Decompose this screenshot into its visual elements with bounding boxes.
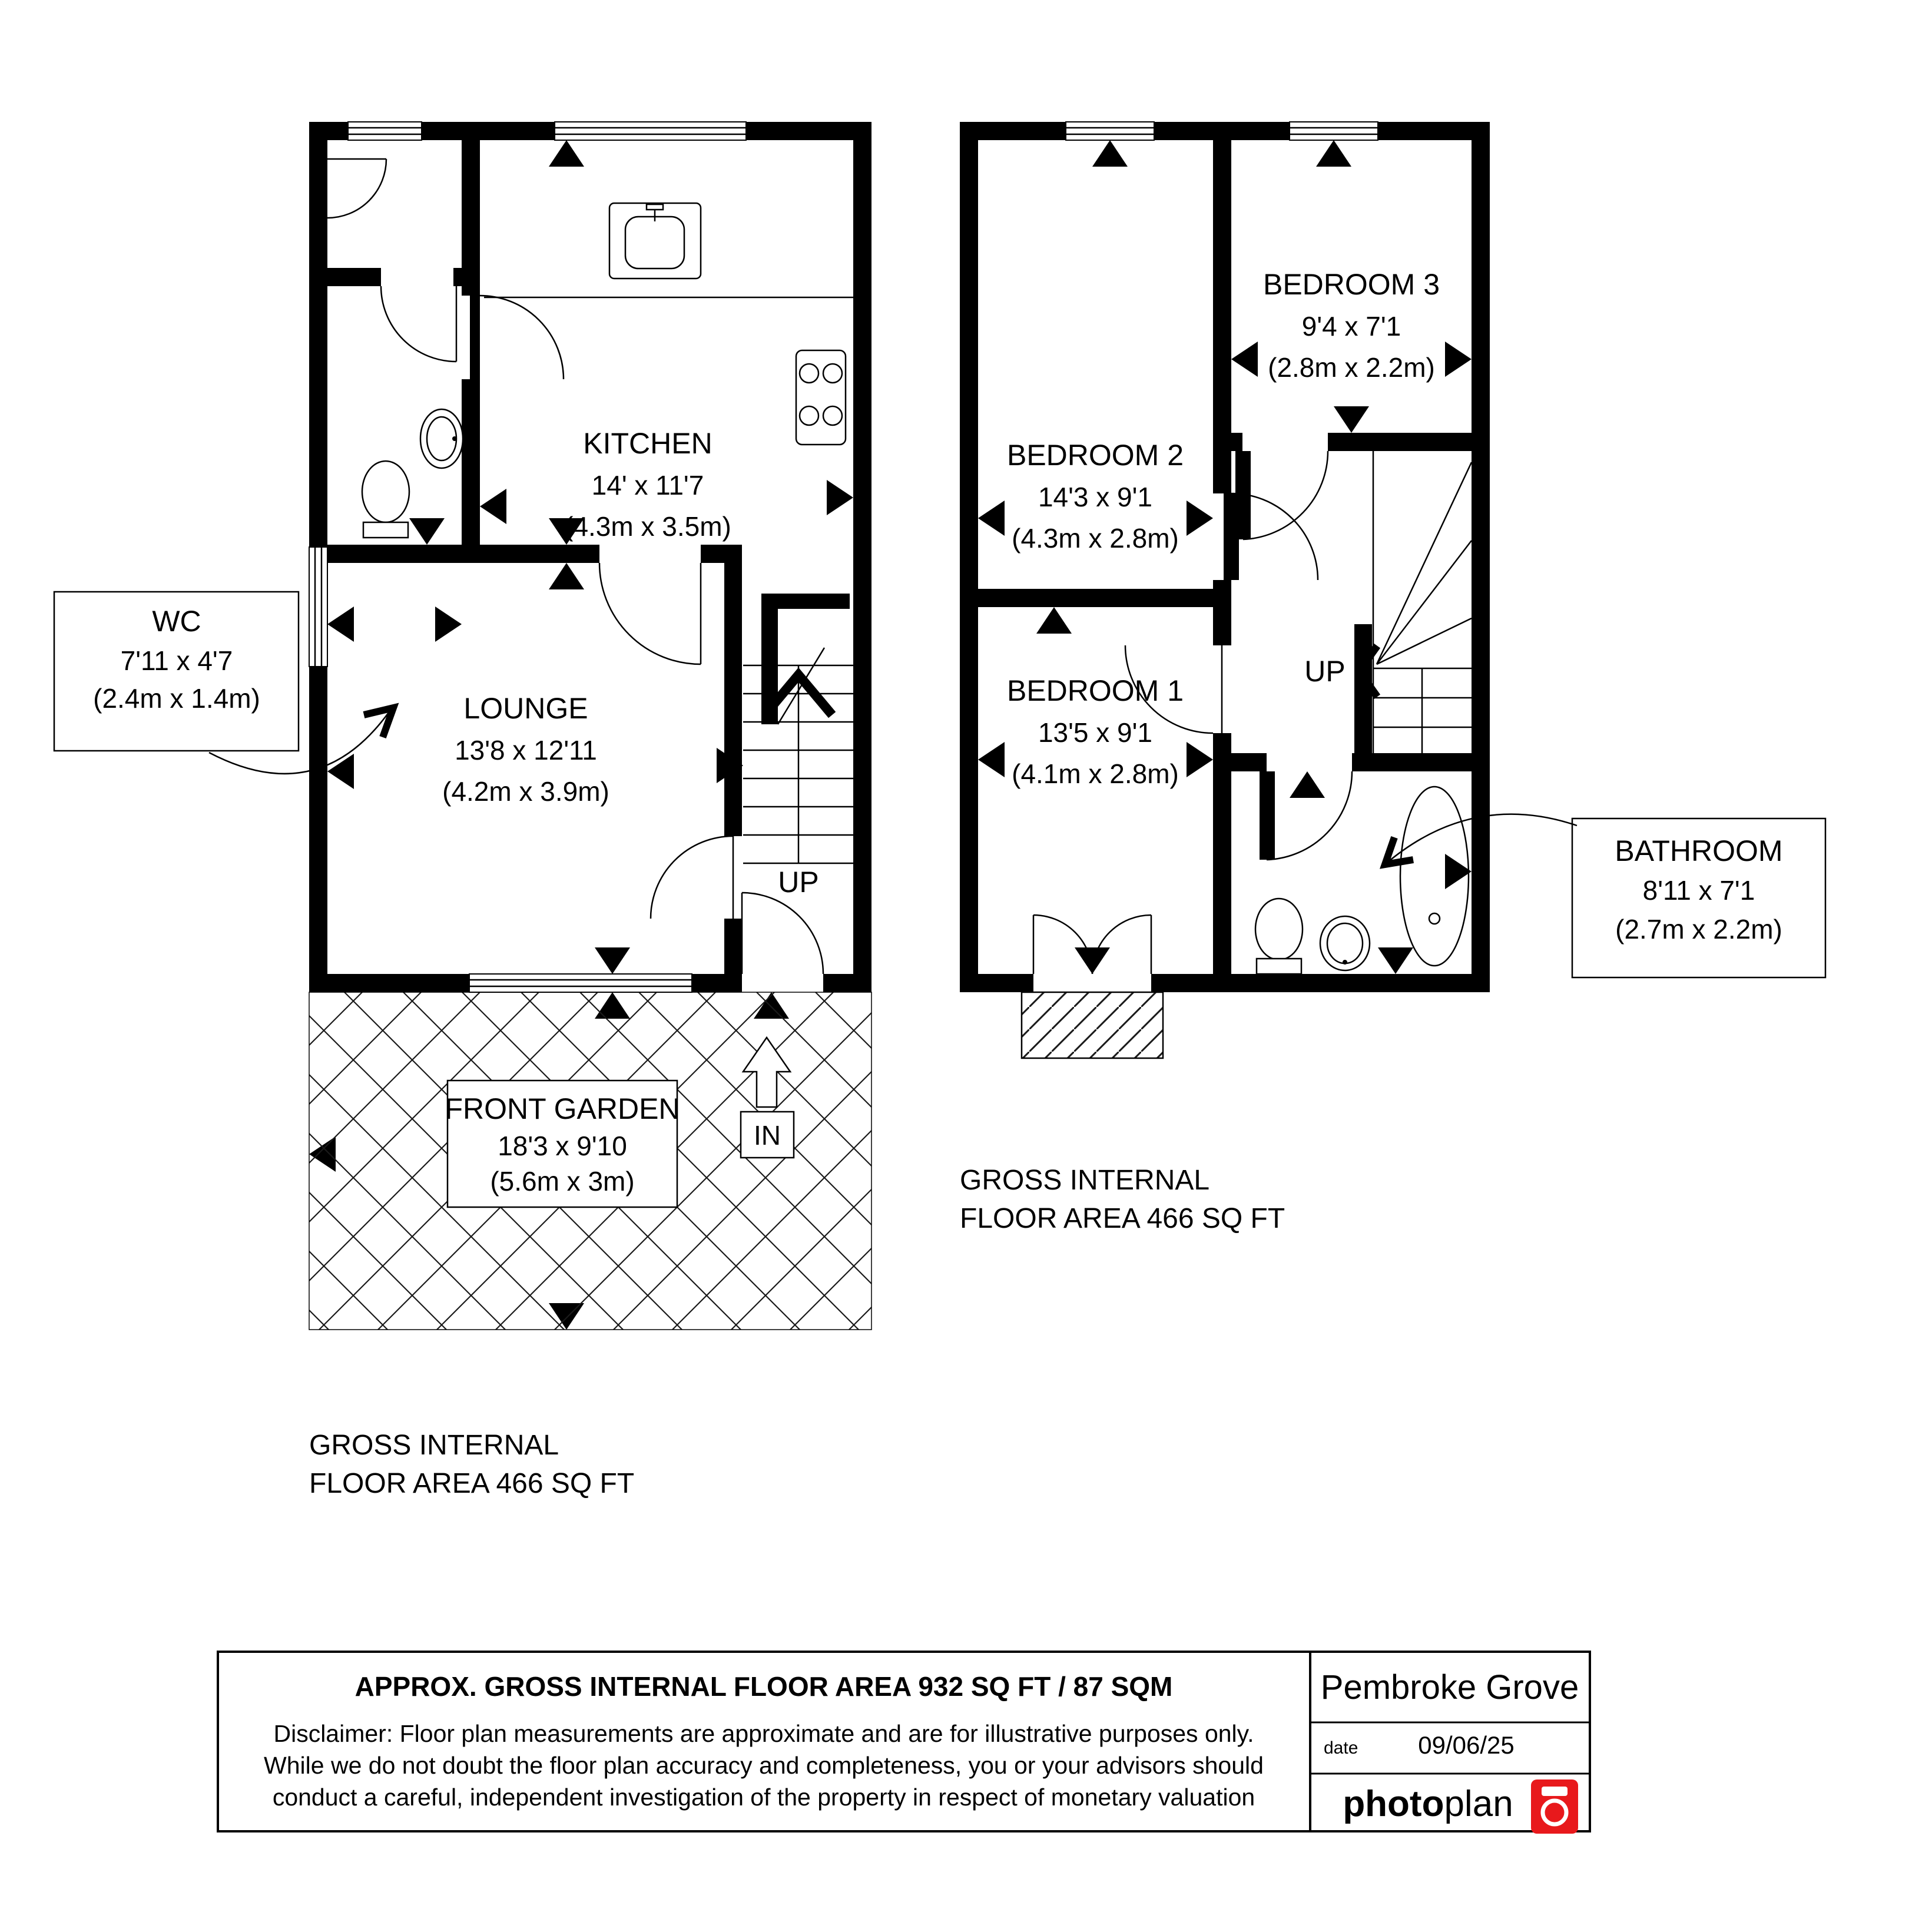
footer-area-title: APPROX. GROSS INTERNAL FLOOR AREA 932 SQ… (355, 1671, 1173, 1702)
dimension-arrow (549, 563, 584, 589)
front-garden-name-label: FRONT GARDEN (445, 1092, 680, 1125)
bedroom2-imperial-label: 14'3 x 9'1 (1038, 482, 1152, 512)
footer-disclaimer-line1: Disclaimer: Floor plan measurements are … (273, 1720, 1254, 1747)
footer-disclaimer-line3: conduct a careful, independent investiga… (273, 1784, 1255, 1811)
stairs-up-label-first: UP (1304, 655, 1345, 688)
front-garden-metric-label: (5.6m x 3m) (490, 1166, 634, 1197)
bedroom1-imperial-label: 13'5 x 9'1 (1038, 717, 1152, 748)
door-swing (651, 836, 733, 919)
bedroom3-metric-label: (2.8m x 2.2m) (1268, 352, 1435, 383)
bedroom1-name-label: BEDROOM 1 (1007, 674, 1184, 707)
bathroom-imperial-label: 8'11 x 7'1 (1643, 875, 1755, 906)
bedroom1-metric-label: (4.1m x 2.8m) (1012, 758, 1179, 789)
bedroom2-name-label: BEDROOM 2 (1007, 439, 1184, 472)
dimension-arrow (1036, 607, 1072, 634)
bedroom3-imperial-label: 9'4 x 7'1 (1302, 311, 1401, 342)
stove-icon (796, 350, 846, 445)
dimension-arrow (1187, 742, 1213, 777)
dimension-arrow (1445, 342, 1472, 377)
window (555, 122, 746, 140)
footer-disclaimer-line2: While we do not doubt the floor plan acc… (264, 1752, 1264, 1779)
camera-icon (1531, 1779, 1578, 1834)
dimension-arrow (1378, 947, 1413, 974)
logo-text-light: plan (1444, 1784, 1513, 1824)
kitchen-imperial-label: 14' x 11'7 (592, 470, 704, 501)
ground-floor-plan: FRONT GARDEN 18'3 x 9'10 (5.6m x 3m) IN … (54, 122, 871, 1499)
wc-name-label: WC (152, 605, 201, 638)
ground-area-note-line1: GROSS INTERNAL (309, 1430, 559, 1461)
front-garden-imperial-label: 18'3 x 9'10 (498, 1131, 627, 1161)
window (469, 974, 692, 992)
door-swing (1235, 451, 1328, 539)
dimension-arrow (327, 607, 354, 642)
ground-area-note-line2: FLOOR AREA 466 SQ FT (309, 1468, 634, 1499)
bathroom-fixtures (1255, 787, 1469, 974)
dimension-arrow (1187, 501, 1213, 536)
window (1290, 122, 1378, 140)
window (348, 122, 422, 140)
property-name: Pembroke Grove (1321, 1668, 1579, 1706)
lounge-metric-label: (4.2m x 3.9m) (442, 776, 609, 807)
door-swing (327, 159, 386, 218)
bedroom3-name-label: BEDROOM 3 (1263, 268, 1440, 301)
date-label: date (1324, 1738, 1358, 1758)
wc-metric-label: (2.4m x 1.4m) (93, 683, 260, 714)
ground-interior-walls (327, 140, 850, 974)
door-swing (381, 286, 456, 362)
toilet-icon (1255, 899, 1303, 974)
front-door-opening (742, 974, 823, 992)
dimension-arrow (595, 947, 630, 974)
logo-text-bold: photo (1343, 1784, 1444, 1824)
toilet-icon (362, 461, 409, 538)
door-swing (470, 296, 564, 379)
first-area-note-line2: FLOOR AREA 466 SQ FT (960, 1203, 1285, 1234)
dimension-arrow (978, 501, 1005, 536)
dimension-arrow (1075, 947, 1110, 974)
dimension-arrow (549, 140, 584, 167)
first-floor-plan: UP (960, 122, 1825, 1234)
footer: APPROX. GROSS INTERNAL FLOOR AREA 932 SQ… (218, 1652, 1590, 1834)
dimension-arrow (1092, 140, 1128, 167)
kitchen-fixtures (484, 203, 853, 445)
door-swing (599, 563, 701, 664)
date-value: 09/06/25 (1418, 1731, 1515, 1759)
sink-icon (1320, 916, 1370, 970)
wc-leader-arrowhead (364, 708, 393, 737)
staircase-first (1359, 451, 1472, 753)
dimension-arrow (827, 480, 853, 515)
dimension-arrow (435, 607, 462, 642)
sink-icon (420, 409, 463, 468)
dimension-arrow (1334, 406, 1369, 433)
bathroom-name-label: BATHROOM (1615, 834, 1782, 867)
kitchen-name-label: KITCHEN (583, 427, 712, 460)
dimension-arrow (409, 518, 445, 545)
kitchen-metric-label: (4.3m x 3.5m) (564, 511, 731, 542)
front-door-swing (742, 893, 823, 974)
wc-imperial-label: 7'11 x 4'7 (121, 645, 233, 676)
bedroom2-metric-label: (4.3m x 2.8m) (1012, 523, 1179, 554)
lounge-name-label: LOUNGE (463, 692, 588, 725)
bathroom-metric-label: (2.7m x 2.2m) (1615, 914, 1782, 945)
floor-plan-drawing: FRONT GARDEN 18'3 x 9'10 (5.6m x 3m) IN … (0, 0, 1932, 1932)
window (1066, 122, 1154, 140)
ground-doors (327, 159, 823, 974)
entrance-in-label: IN (754, 1120, 781, 1151)
first-windows (1033, 122, 1378, 992)
window (309, 547, 327, 667)
dimension-arrow (1290, 771, 1325, 798)
kitchen-sink-icon (609, 203, 701, 279)
dimension-arrow (1231, 342, 1258, 377)
stairs-up-label-ground: UP (778, 866, 818, 899)
dimension-arrow (978, 742, 1005, 777)
front-garden: FRONT GARDEN 18'3 x 9'10 (5.6m x 3m) IN (309, 992, 871, 1330)
dimension-arrow (480, 489, 506, 524)
french-door-opening (1033, 974, 1151, 992)
dimension-arrow (1316, 140, 1351, 167)
first-area-note-line1: GROSS INTERNAL (960, 1165, 1209, 1196)
floorplan-page: FRONT GARDEN 18'3 x 9'10 (5.6m x 3m) IN … (0, 0, 1932, 1932)
entrance-step-hatch (1022, 992, 1163, 1058)
staircase-ground (743, 665, 853, 863)
lounge-imperial-label: 13'8 x 12'11 (455, 735, 597, 765)
photoplan-logo-text: photoplan (1343, 1784, 1513, 1824)
